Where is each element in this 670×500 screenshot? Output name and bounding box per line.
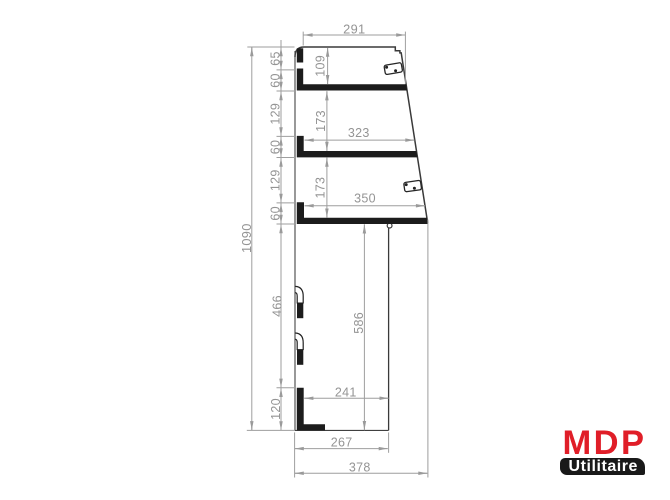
- svg-text:267: 267: [331, 435, 353, 449]
- svg-text:60: 60: [268, 140, 282, 155]
- svg-text:129: 129: [268, 103, 282, 125]
- svg-text:173: 173: [314, 110, 328, 132]
- svg-text:60: 60: [268, 73, 282, 88]
- svg-text:466: 466: [270, 295, 284, 317]
- svg-text:173: 173: [313, 177, 327, 199]
- svg-text:291: 291: [343, 22, 365, 37]
- svg-text:350: 350: [354, 192, 376, 206]
- svg-text:586: 586: [352, 312, 366, 334]
- svg-text:120: 120: [269, 398, 283, 420]
- svg-text:378: 378: [349, 461, 371, 475]
- svg-text:60: 60: [268, 206, 282, 221]
- svg-text:241: 241: [335, 385, 357, 399]
- svg-text:65: 65: [268, 51, 282, 66]
- svg-text:1090: 1090: [239, 223, 254, 253]
- svg-text:109: 109: [314, 55, 328, 77]
- svg-text:129: 129: [268, 169, 282, 191]
- svg-text:323: 323: [348, 126, 370, 140]
